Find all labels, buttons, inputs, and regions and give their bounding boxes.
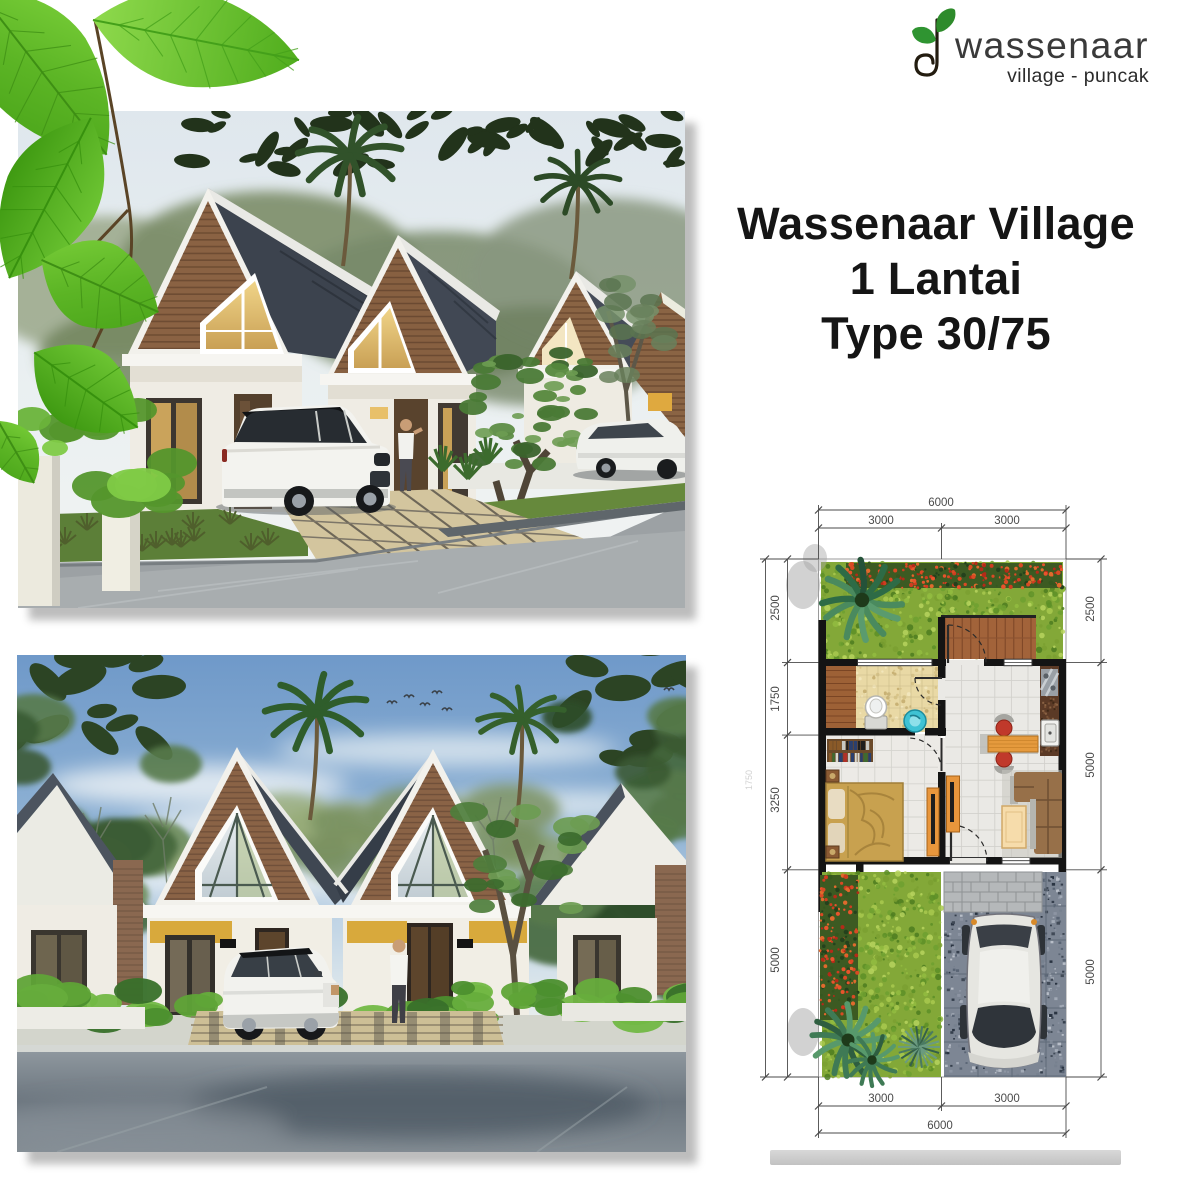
svg-text:5000: 5000: [1085, 752, 1097, 778]
svg-text:2500: 2500: [1085, 596, 1097, 622]
svg-text:3250: 3250: [770, 787, 782, 813]
svg-text:1750: 1750: [744, 770, 754, 790]
svg-text:3000: 3000: [994, 515, 1020, 527]
svg-text:2500: 2500: [770, 595, 782, 621]
svg-text:3000: 3000: [868, 1093, 894, 1105]
svg-text:5000: 5000: [1085, 959, 1097, 985]
svg-text:6000: 6000: [927, 1120, 953, 1132]
svg-text:5000: 5000: [770, 947, 782, 973]
svg-text:3000: 3000: [994, 1093, 1020, 1105]
svg-text:1750: 1750: [770, 686, 782, 712]
svg-text:6000: 6000: [928, 497, 954, 509]
svg-text:3000: 3000: [868, 515, 894, 527]
